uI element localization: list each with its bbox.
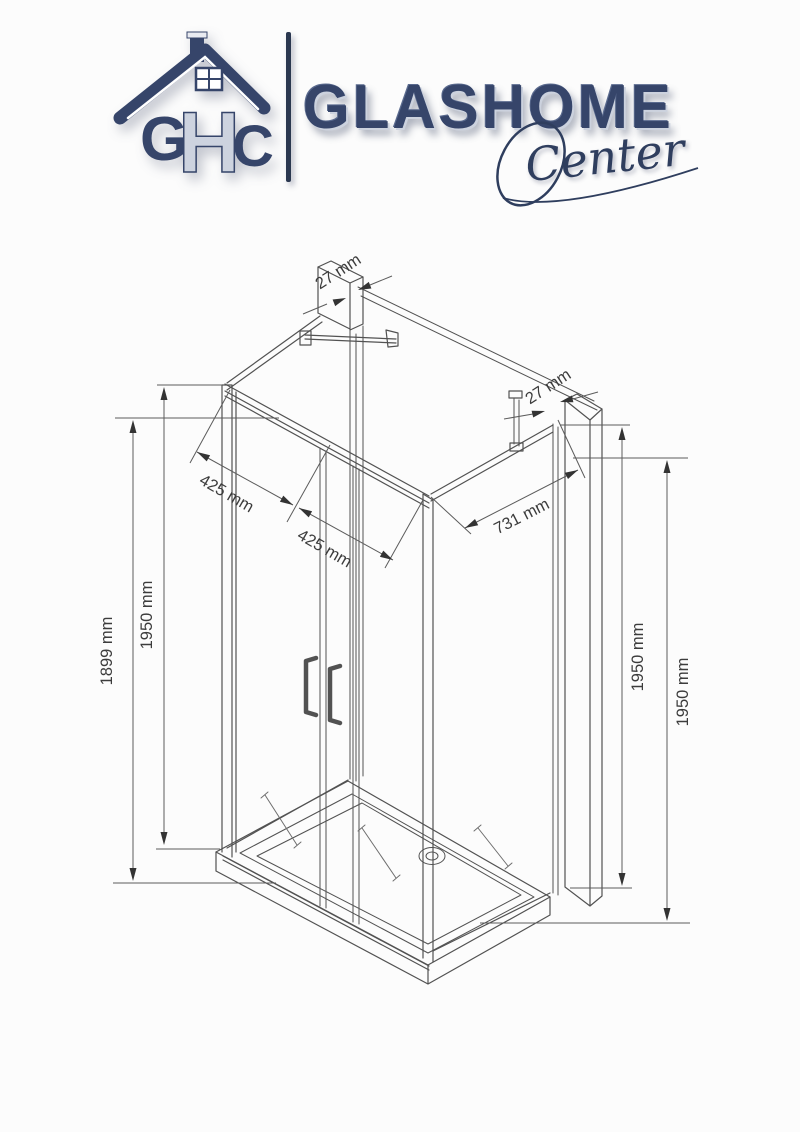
dim-731: 731 mm [431,420,585,538]
dim-27-right: 27 mm [504,366,598,419]
front-right-frame-column [423,494,433,962]
dim-label-425-a: 425 mm [196,471,257,516]
sliding-door-handle-pair [306,658,340,723]
left-stabilizer-bar [300,330,398,347]
dim-label-1950-right-outer: 1950 mm [674,658,692,727]
right-wall-profile [565,394,602,906]
dim-label-27-top: 27 mm [312,251,364,294]
dim-425-a: 425 mm [190,390,293,516]
left-glass-panel [227,316,348,848]
door-handle-outer [306,658,316,715]
top-back-rail [358,287,597,410]
dim-1950-right-inner: 1950 mm [560,425,647,888]
right-stabilizer-rod [509,391,523,451]
shower-enclosure-drawing: 1950 mm 1899 mm 1950 mm 1950 mm 425 mm [0,0,800,1132]
dim-label-731: 731 mm [491,495,552,538]
page: { "logo": { "monogram_letters": ["G", "H… [0,0,800,1132]
dim-label-1950-right-inner: 1950 mm [629,623,647,692]
dim-425-b: 425 mm [287,445,423,571]
door-handle-inner [330,666,340,723]
dim-label-1950-left: 1950 mm [138,581,156,650]
left-wall-profile [318,261,363,781]
front-face-frame [225,384,429,924]
front-left-frame-column [222,385,236,857]
dim-1899-left: 1899 mm [98,418,279,883]
dim-label-425-b: 425 mm [294,526,355,571]
dim-label-1899: 1899 mm [98,617,116,686]
dim-1950-left: 1950 mm [138,385,222,849]
